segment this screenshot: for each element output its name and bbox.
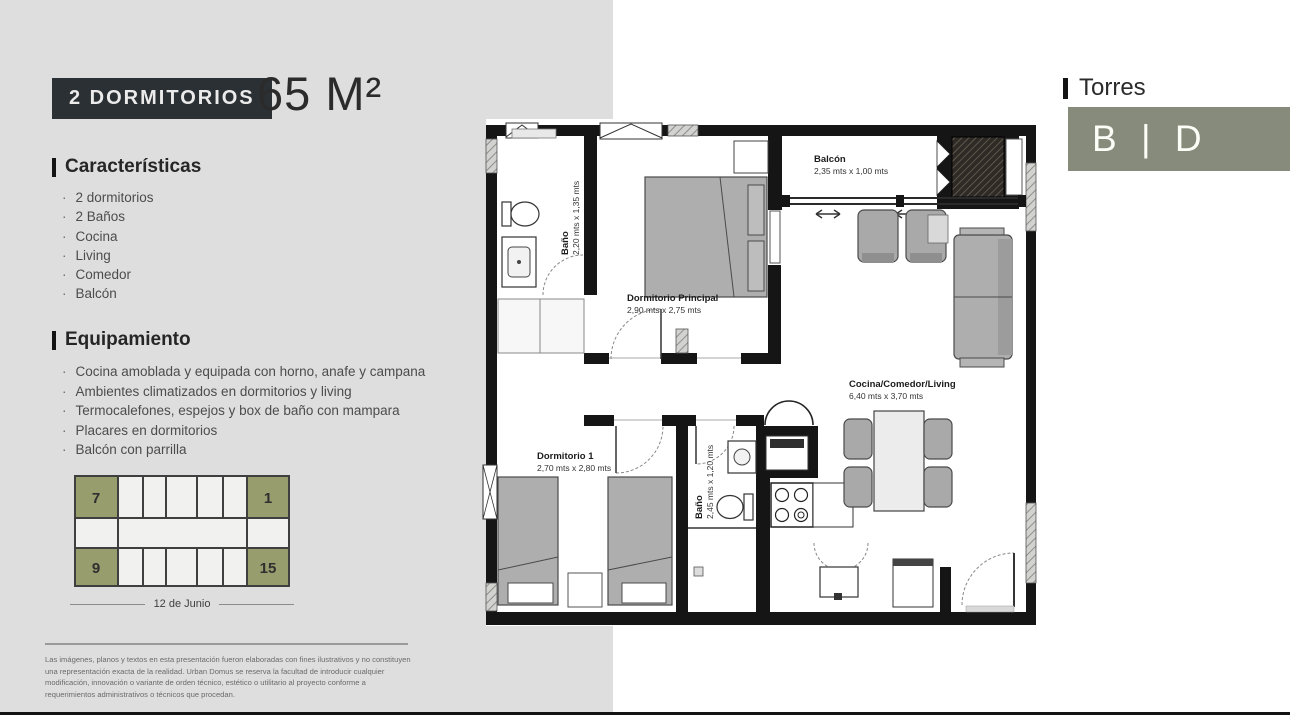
list-item: 2 dormitorios [62, 188, 154, 207]
street-line [219, 604, 294, 605]
nightstand [568, 573, 602, 607]
unit-number: 7 [92, 490, 100, 507]
bedrooms-badge: 2 DORMITORIOS [52, 78, 272, 119]
list-item: Cocina [62, 227, 154, 246]
caracteristicas-list: 2 dormitorios 2 Baños Cocina Living Come… [62, 188, 154, 304]
list-item: Living [62, 246, 154, 265]
list-item: Balcón [62, 284, 154, 303]
section-title-text: Equipamiento [65, 329, 191, 351]
pillow [748, 241, 764, 291]
list-item: Comedor [62, 265, 154, 284]
dining-chair [924, 419, 952, 459]
list-item: Placares en dormitorios [62, 421, 425, 441]
dining-chair [924, 467, 952, 507]
room-label: Cocina/Comedor/Living [849, 379, 956, 390]
floor-plan: Baño 2,20 mts x 1,35 mts Dormitorio Prin… [482, 115, 1040, 630]
side-table [928, 215, 948, 243]
list-item: Cocina amoblada y equipada con horno, an… [62, 362, 425, 382]
stove [771, 483, 813, 527]
room-dims: 2,35 mts x 1,00 mts [814, 166, 888, 176]
room-label: Baño [694, 495, 705, 519]
street-label-row: 12 de Junio [70, 598, 294, 610]
courtyard [118, 518, 247, 548]
legal-disclaimer: Las imágenes, planos y textos en esta pr… [45, 654, 417, 700]
room-label: Baño [560, 231, 571, 255]
torres-title-text: Torres [1079, 74, 1146, 102]
list-item: Balcón con parrilla [62, 440, 425, 460]
room-dims: 2,20 mts x 1,35 mts [571, 181, 581, 255]
caracteristicas-section-title: Características [52, 156, 201, 178]
room-dims: 2,90 mts x 2,75 mts [627, 305, 701, 315]
pillow [748, 185, 764, 235]
dining-chair [844, 467, 872, 507]
area-label: 65 M² [257, 66, 382, 121]
hall-closets [498, 299, 584, 353]
room-dims: 2,70 mts x 2,80 mts [537, 463, 611, 473]
unit-number: 1 [264, 490, 272, 507]
room-label: Dormitorio 1 [537, 451, 594, 462]
unit-number: 9 [92, 560, 100, 577]
nightstand [734, 141, 768, 173]
torres-title: Torres [1063, 74, 1146, 102]
footer-divider [45, 643, 408, 645]
tower-logo-text: B | D [1092, 118, 1209, 160]
building-unit-grid: 7 1 9 15 [73, 474, 291, 590]
dining-table [874, 411, 924, 511]
list-item: 2 Baños [62, 207, 154, 226]
section-title-text: Características [65, 156, 201, 178]
equipamiento-section-title: Equipamiento [52, 329, 191, 351]
room-label: Dormitorio Principal [627, 293, 718, 304]
tower-logo-badge: B | D [1068, 107, 1290, 171]
list-item: Termocalefones, espejos y box de baño co… [62, 401, 425, 421]
room-label: Balcón [814, 154, 846, 165]
unit-number: 15 [260, 560, 277, 577]
toilet [502, 202, 511, 226]
dining-chair [844, 419, 872, 459]
presentation-slide: 2 DORMITORIOS 65 M² Características 2 do… [0, 0, 1290, 715]
room-dims: 6,40 mts x 3,70 mts [849, 391, 923, 401]
shower-drain [694, 567, 703, 576]
pillow [508, 583, 553, 603]
equipamiento-list: Cocina amoblada y equipada con horno, an… [62, 362, 425, 460]
list-item: Ambientes climatizados en dormitorios y … [62, 382, 425, 402]
street-line [70, 604, 145, 605]
toilet [744, 494, 753, 520]
title-bar-mark [52, 158, 56, 177]
cabinet [893, 559, 933, 607]
title-bar-mark [1063, 78, 1068, 99]
room-dims: 2,45 mts x 1,20 mts [705, 445, 715, 519]
pillow [622, 583, 666, 603]
street-name: 12 de Junio [154, 598, 211, 610]
kitchen-sink [820, 567, 858, 597]
title-bar-mark [52, 331, 56, 350]
